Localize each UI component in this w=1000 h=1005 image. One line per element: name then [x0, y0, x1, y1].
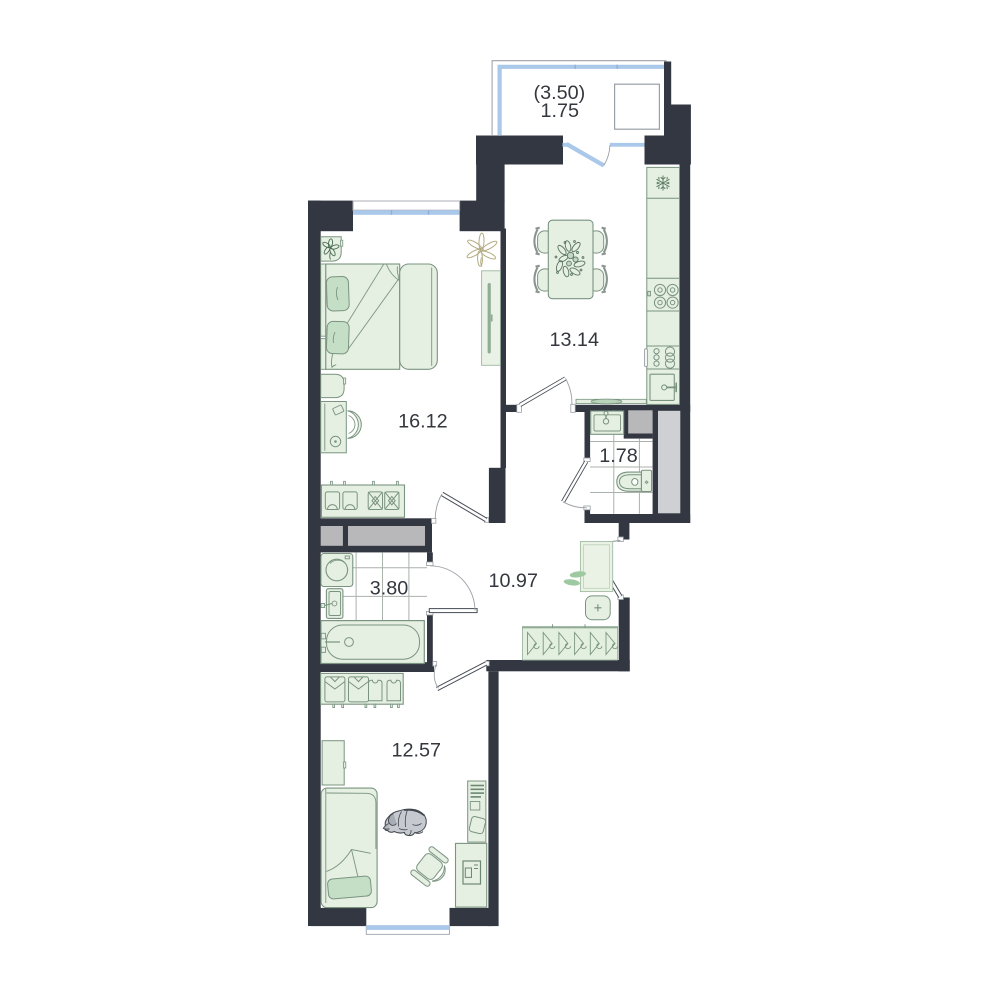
svg-text:1.78: 1.78	[599, 445, 638, 467]
svg-text:10.97: 10.97	[488, 570, 538, 592]
svg-text:16.12: 16.12	[398, 410, 448, 432]
svg-text:1.75: 1.75	[541, 100, 580, 122]
svg-text:3.80: 3.80	[370, 578, 409, 600]
svg-text:13.14: 13.14	[549, 329, 599, 351]
svg-text:12.57: 12.57	[392, 740, 442, 762]
